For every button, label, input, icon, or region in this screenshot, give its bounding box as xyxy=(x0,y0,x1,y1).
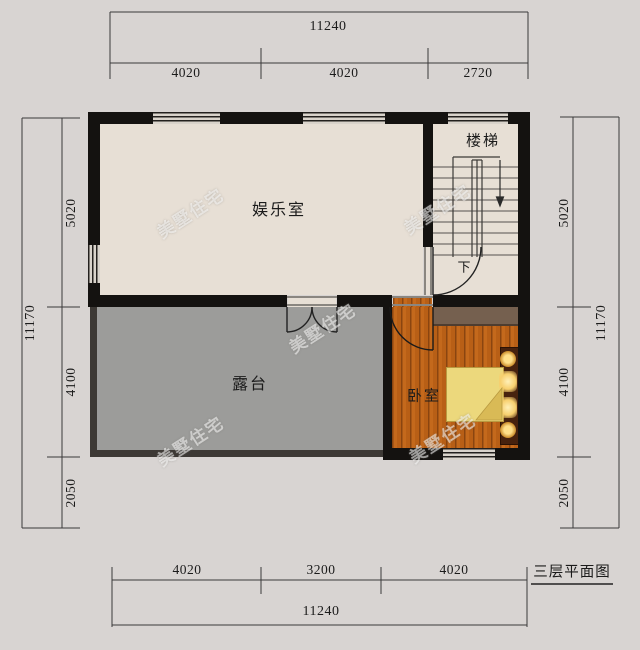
dim-right-segment-2: 2050 xyxy=(556,479,572,508)
stair-treads xyxy=(433,167,518,255)
room-label-entertainment: 娱乐室 xyxy=(252,196,306,220)
dim-left-total: 11170 xyxy=(23,305,39,341)
drawing-title: 三层平面图 xyxy=(533,561,611,582)
floor-plan-canvas: 美墅住宅 美墅住宅 美墅住宅 美墅住宅 美墅住宅 娱乐室 楼梯 露台 卧室 下 … xyxy=(0,0,640,650)
stair-down-label: 下 xyxy=(457,257,470,276)
dim-top-total: 11240 xyxy=(310,19,347,35)
dim-bottom-segment-2: 4020 xyxy=(440,562,469,578)
dim-right-segment-1: 4100 xyxy=(556,368,572,397)
dim-bottom-segment-1: 3200 xyxy=(307,562,336,578)
stair-railing xyxy=(453,157,500,257)
room-label-stairs: 楼梯 xyxy=(466,130,500,151)
room-label-bedroom: 卧室 xyxy=(407,385,441,406)
dim-bottom-total: 11240 xyxy=(303,604,340,620)
dim-bottom-segment-0: 4020 xyxy=(173,562,202,578)
dim-top-segment-1: 4020 xyxy=(330,65,359,81)
double-door-to-terrace xyxy=(287,307,337,332)
plan-linework xyxy=(0,0,640,650)
dim-left-segment-0: 5020 xyxy=(63,199,79,228)
dim-top-segment-2: 2720 xyxy=(464,65,493,81)
dim-left-segment-2: 2050 xyxy=(63,479,79,508)
dim-right-total: 11170 xyxy=(594,305,610,341)
dim-right-segment-0: 5020 xyxy=(556,199,572,228)
bedroom-door xyxy=(390,307,433,350)
quilt-fold xyxy=(476,388,502,420)
dim-left-segment-1: 4100 xyxy=(63,368,79,397)
room-label-terrace: 露台 xyxy=(232,370,268,394)
dim-top-segment-0: 4020 xyxy=(172,65,201,81)
